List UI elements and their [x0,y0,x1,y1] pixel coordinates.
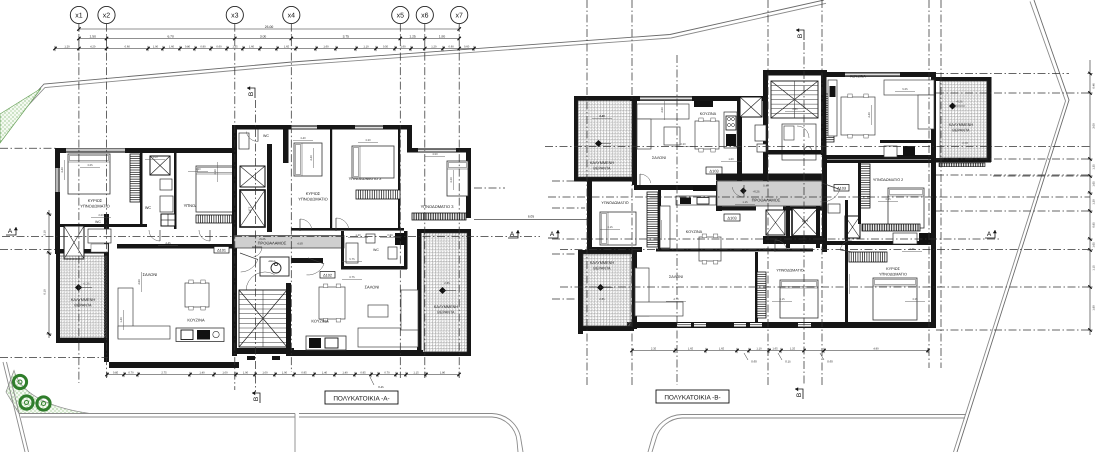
svg-text:ΥΠΝΟΔΩΜΑΤΙΟ 2: ΥΠΝΟΔΩΜΑΤΙΟ 2 [873,178,903,182]
svg-text:A: A [510,231,515,238]
svg-text:A: A [550,231,555,238]
svg-text:0.60: 0.60 [751,360,757,364]
svg-text:x3: x3 [231,12,239,19]
svg-text:A: A [8,228,13,235]
svg-text:1.60: 1.60 [323,45,329,48]
svg-text:LIFT: LIFT [248,207,252,214]
svg-text:5.65: 5.65 [902,88,908,91]
svg-text:0.60: 0.60 [125,45,131,48]
svg-text:WC: WC [263,134,269,138]
svg-text:ΚΑΛΥΜΜΕΝΗ: ΚΑΛΥΜΜΕΝΗ [71,298,95,302]
svg-text:4.40: 4.40 [310,155,313,161]
svg-text:ΥΠΝΟΔΩΜΑΤΙΟ: ΥΠΝΟΔΩΜΑΤΙΟ [601,201,628,205]
svg-text:Δ101: Δ101 [217,249,226,253]
svg-text:3.35: 3.35 [885,198,891,201]
svg-text:4.60: 4.60 [661,107,664,113]
svg-text:2.85: 2.85 [444,281,450,285]
svg-text:6.75: 6.75 [349,276,355,279]
svg-text:ΚΟΥΖΙΝΑ: ΚΟΥΖΙΝΑ [311,319,329,324]
svg-text:1.65: 1.65 [1093,181,1096,187]
svg-text:ΚΥΡΙΩΣ: ΚΥΡΙΩΣ [306,191,321,196]
svg-text:1.10: 1.10 [363,45,369,48]
svg-text:0.60: 0.60 [448,45,454,48]
svg-text:B: B [796,393,803,397]
svg-text:ΠΡΟΘΑΛΑΜΟΣ: ΠΡΟΘΑΛΑΜΟΣ [258,240,287,245]
svg-text:+1.25: +1.25 [82,282,90,286]
svg-text:1.65: 1.65 [1093,242,1096,248]
svg-text:ΚΑΛΥΜΜΕΝΗ: ΚΑΛΥΜΜΕΝΗ [590,261,614,265]
svg-text:ΚΟΥΖΙΝΑ: ΚΟΥΖΙΝΑ [850,75,866,79]
svg-text:2.60: 2.60 [846,281,849,287]
svg-text:WC: WC [95,220,101,224]
svg-text:4.60: 4.60 [138,279,141,285]
svg-text:ΥΠΝΟΔΩΜΑΤΙΟ: ΥΠΝΟΔΩΜΑΤΙΟ [879,273,907,277]
svg-text:ΥΠΝΟΔΩΜΑΤΙΟ: ΥΠΝΟΔΩΜΑΤΙΟ [298,197,328,202]
svg-text:3.00: 3.00 [1093,123,1096,129]
svg-text:1.50: 1.50 [89,34,96,38]
svg-text:1.65: 1.65 [284,45,290,48]
svg-text:ΚΟΥΖΙΝΑ: ΚΟΥΖΙΝΑ [187,318,205,323]
svg-text:ΚΑΛΥΜΜΕΝΗ: ΚΑΛΥΜΜΕΝΗ [949,123,973,127]
svg-text:ΑΜΕΑ: ΑΜΕΑ [268,260,276,263]
svg-text:1.50: 1.50 [152,156,158,159]
svg-text:3.00: 3.00 [260,34,267,38]
svg-text:B: B [253,397,260,401]
svg-text:1.65: 1.65 [772,347,778,350]
svg-text:A: A [987,231,992,238]
svg-text:1.00: 1.00 [243,371,249,374]
svg-text:ΒΕΡΑΝΤΑ: ΒΕΡΑΝΤΑ [593,267,611,271]
svg-text:0.90: 0.90 [200,45,206,48]
svg-text:2.75: 2.75 [161,371,167,374]
svg-text:Δ102: Δ102 [323,274,332,278]
svg-text:5.75: 5.75 [349,258,355,261]
svg-text:WC: WC [145,206,152,210]
svg-text:0.60: 0.60 [216,45,222,48]
svg-text:ΚΑΛΥΜΜΕΝΗ: ΚΑΛΥΜΜΕΝΗ [590,161,614,165]
svg-text:0.50: 0.50 [383,45,389,48]
svg-text:1.15: 1.15 [1093,265,1096,271]
svg-text:2.50: 2.50 [792,108,798,111]
svg-text:0.70: 0.70 [384,371,390,374]
svg-text:0.60: 0.60 [827,360,833,364]
svg-text:1.00: 1.00 [658,227,661,233]
svg-text:0.95: 0.95 [301,371,307,374]
svg-text:2.85: 2.85 [599,297,605,301]
svg-text:Δ103: Δ103 [709,168,719,173]
svg-text:3.20: 3.20 [195,168,201,171]
svg-text:26.00: 26.00 [265,25,274,29]
svg-text:ΚΥΡΙΩΣ: ΚΥΡΙΩΣ [886,267,900,271]
svg-text:4.40: 4.40 [868,112,871,118]
svg-text:3.65: 3.65 [87,164,93,167]
svg-text:x1: x1 [75,12,83,19]
svg-text:ΣΑΛΟΝΙ: ΣΑΛΟΝΙ [143,272,158,277]
svg-text:ΥΠΝΟΔΩΜΑΤΙΟ: ΥΠΝΟΔΩΜΑΤΙΟ [776,269,803,273]
svg-text:ΒΕΡΑΝΤΑ: ΒΕΡΑΝΤΑ [74,304,92,308]
svg-text:1.80: 1.80 [1093,305,1096,311]
svg-text:1.20: 1.20 [431,45,437,48]
svg-text:1.15: 1.15 [742,201,748,204]
svg-text:1.80: 1.80 [439,34,446,38]
svg-text:1.40: 1.40 [199,371,205,374]
svg-text:1.30: 1.30 [1093,199,1096,205]
svg-text:2.40: 2.40 [599,115,605,118]
svg-text:B: B [797,34,804,38]
svg-text:+6.25: +6.25 [752,190,760,194]
svg-text:WC: WC [373,248,379,252]
svg-text:0.45: 0.45 [378,385,384,389]
svg-text:2.60: 2.60 [98,214,104,217]
svg-text:1.40: 1.40 [342,371,348,374]
svg-text:0.85: 0.85 [113,371,119,374]
svg-text:1.00: 1.00 [222,371,228,374]
svg-text:3.20: 3.20 [365,139,371,142]
svg-text:ΚΟΥΖΙΝΑ: ΚΟΥΖΙΝΑ [686,230,703,234]
svg-text:3.10: 3.10 [44,230,47,236]
svg-text:1.65: 1.65 [688,347,694,350]
svg-text:3.40: 3.40 [61,167,64,173]
svg-text:3.40: 3.40 [300,137,306,140]
svg-text:x7: x7 [455,12,463,19]
svg-text:4.90: 4.90 [873,347,879,350]
svg-text:4.20: 4.20 [90,45,96,48]
svg-text:1.60: 1.60 [728,158,734,161]
svg-text:ΥΠΝΟΔΩΜΑΤΙΟ: ΥΠΝΟΔΩΜΑΤΙΟ [80,204,110,209]
svg-text:4.45: 4.45 [165,242,171,245]
svg-text:LIFT: LIFT [802,219,808,223]
svg-text:6.05: 6.05 [528,215,534,219]
svg-text:0.80: 0.80 [185,45,191,48]
svg-text:ΚΥΡΙΩΣ: ΚΥΡΙΩΣ [88,198,103,203]
svg-text:Δ103: Δ103 [727,215,737,220]
svg-text:ΥΠΝΟΔΩΜΑΤΙΟ 3: ΥΠΝΟΔΩΜΑΤΙΟ 3 [421,204,455,209]
svg-text:3.15: 3.15 [779,298,785,301]
svg-text:3.30: 3.30 [214,169,217,175]
svg-text:1.35: 1.35 [232,45,238,48]
svg-text:ΒΕΡΑΝΤΑ: ΒΕΡΑΝΤΑ [952,129,970,133]
svg-text:1.40: 1.40 [322,371,328,374]
svg-text:ΠΟΛΥΚΑΤΟΙΚΙΑ -Β-: ΠΟΛΥΚΑΤΟΙΚΙΑ -Β- [664,394,720,401]
svg-text:1.20: 1.20 [64,45,70,48]
svg-text:B: B [248,92,255,96]
svg-text:0.46: 0.46 [1093,83,1096,89]
svg-text:ΣΑΛΟΝΙ: ΣΑΛΟΝΙ [669,275,683,279]
svg-text:1.80: 1.80 [440,371,446,374]
svg-text:1.60: 1.60 [169,45,175,48]
svg-text:ΣΑΛΟΝΙ: ΣΑΛΟΝΙ [365,285,380,290]
svg-text:ΠΡΟΘΑΛΑΜΟΣ: ΠΡΟΘΑΛΑΜΟΣ [752,198,781,203]
svg-text:0.95: 0.95 [360,371,366,374]
svg-text:6.70: 6.70 [167,34,174,38]
svg-text:x2: x2 [103,12,111,19]
svg-text:1.40: 1.40 [120,317,123,323]
svg-text:1.65: 1.65 [719,347,725,350]
svg-text:0.15: 0.15 [785,360,791,364]
svg-text:+6.25: +6.25 [258,237,266,241]
svg-text:0.10: 0.10 [44,289,47,295]
svg-text:1.35: 1.35 [1093,164,1096,170]
svg-text:3.20: 3.20 [450,177,453,183]
svg-text:ΣΑΛΟΝΙ: ΣΑΛΟΝΙ [652,156,666,160]
svg-text:1.25: 1.25 [790,347,796,350]
svg-text:4.50: 4.50 [297,241,303,245]
svg-text:1.15: 1.15 [413,371,419,374]
svg-text:1.60: 1.60 [249,45,255,48]
svg-text:2.70: 2.70 [962,141,968,145]
svg-text:ΒΕΡΑΝΤΑ: ΒΕΡΑΝΤΑ [593,167,611,171]
svg-text:0.85: 0.85 [1093,222,1096,228]
svg-text:3.15: 3.15 [607,226,613,229]
svg-text:1.00: 1.00 [262,371,268,374]
svg-text:4.70: 4.70 [673,298,679,301]
svg-text:+6.25: +6.25 [955,100,963,104]
svg-text:3.75: 3.75 [343,34,350,38]
svg-text:ΠΟΛΥΚΑΤΟΙΚΙΑ -Α-: ΠΟΛΥΚΑΤΟΙΚΙΑ -Α- [333,395,389,402]
svg-text:x6: x6 [421,12,429,19]
svg-text:3.35: 3.35 [912,298,918,301]
svg-text:1.60: 1.60 [400,45,406,48]
svg-text:2.20: 2.20 [680,143,686,146]
svg-text:0.60: 0.60 [464,45,470,48]
svg-text:ΚΑΛΥΜΜΕΝΗ: ΚΑΛΥΜΜΕΝΗ [434,305,458,309]
svg-text:ΚΟΥΖΙΝΑ: ΚΟΥΖΙΝΑ [700,112,717,116]
svg-text:2.35: 2.35 [651,347,657,350]
svg-text:1.00: 1.00 [282,371,288,374]
svg-text:x4: x4 [288,12,296,19]
svg-text:ΒΕΡΑΝΤΑ: ΒΕΡΑΝΤΑ [437,311,455,315]
svg-text:3.50: 3.50 [432,153,438,156]
svg-text:1.00: 1.00 [153,45,159,48]
svg-text:x5: x5 [397,12,405,19]
svg-text:1.10: 1.10 [756,347,762,350]
svg-text:1.25: 1.25 [409,34,416,38]
svg-text:0.70: 0.70 [128,371,134,374]
